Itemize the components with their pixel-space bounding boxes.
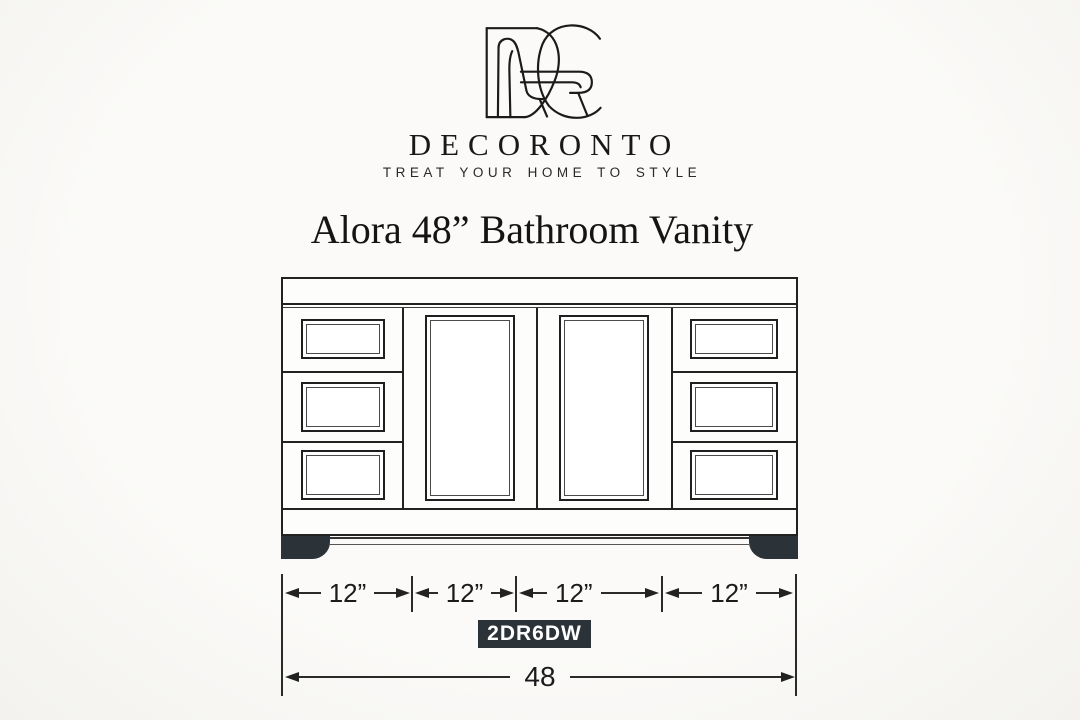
arrow-right-icon — [500, 588, 514, 598]
dimension-tick — [411, 576, 413, 612]
drawer-panel — [690, 319, 778, 359]
door-panel — [559, 315, 649, 501]
dimension-line — [756, 592, 779, 594]
dc-chair-monogram-icon — [478, 16, 618, 124]
cabinet-sections — [283, 308, 796, 510]
dimension-segment-2: 12” — [415, 579, 514, 607]
dimension-line — [491, 592, 500, 594]
drawer-panel — [301, 319, 385, 359]
drawer-panel — [301, 450, 385, 500]
dimension-line — [601, 592, 645, 594]
arrow-left-icon — [665, 588, 679, 598]
brand-name: DECORONTO — [0, 127, 1080, 163]
left-drawer-stack — [283, 308, 404, 508]
drawer — [283, 373, 402, 443]
drawer — [283, 443, 402, 508]
dimension-segment-4: 12” — [665, 579, 793, 607]
dimension-label: 12” — [547, 578, 601, 609]
extension-line-right — [795, 574, 797, 696]
right-foot — [749, 536, 798, 559]
model-code-badge: 2DR6DW — [478, 620, 591, 648]
drawer-panel — [690, 450, 778, 500]
dimension-label: 12” — [321, 578, 375, 609]
drawer-panel-inner — [695, 455, 773, 495]
dimension-line — [679, 592, 702, 594]
brand-tagline: TREAT YOUR HOME TO STYLE — [0, 165, 1080, 180]
dimension-line — [374, 592, 396, 594]
dimension-total: 48 — [285, 662, 795, 692]
arrow-left-icon — [285, 672, 299, 682]
dimension-line — [533, 592, 547, 594]
dimension-line — [299, 676, 510, 678]
arrow-left-icon — [519, 588, 533, 598]
countertop-strip — [283, 279, 796, 305]
dimension-label: 12” — [438, 578, 492, 609]
extension-line-left — [281, 574, 283, 696]
total-width-label: 48 — [510, 661, 569, 693]
arrow-left-icon — [415, 588, 429, 598]
bottom-rail — [283, 510, 796, 534]
drawer-panel-inner — [306, 455, 380, 495]
dimension-tick — [661, 576, 663, 612]
drawer — [283, 308, 402, 373]
toe-kick-line — [329, 537, 749, 545]
drawer-panel-inner — [306, 387, 380, 427]
door-panel-inner — [430, 320, 510, 496]
drawer-panel — [301, 382, 385, 432]
brand-monogram-icon — [478, 16, 618, 124]
vanity-drawing — [281, 277, 798, 536]
drawer-panel-inner — [306, 324, 380, 354]
dimension-line — [299, 592, 321, 594]
drawer — [673, 443, 796, 508]
left-foot — [281, 536, 330, 559]
right-drawer-stack — [673, 308, 796, 508]
right-door — [538, 308, 673, 508]
dimension-tick — [515, 576, 517, 612]
drawer-panel-inner — [695, 324, 773, 354]
drawer-panel-inner — [695, 387, 773, 427]
arrow-right-icon — [396, 588, 410, 598]
arrow-left-icon — [285, 588, 299, 598]
product-title: Alora 48” Bathroom Vanity — [0, 206, 1064, 253]
drawer — [673, 308, 796, 373]
arrow-right-icon — [779, 588, 793, 598]
arrow-right-icon — [781, 672, 795, 682]
door-panel-inner — [564, 320, 644, 496]
dimension-segment-3: 12” — [519, 579, 659, 607]
drawer — [673, 373, 796, 443]
dimension-line — [570, 676, 781, 678]
door-panel — [425, 315, 515, 501]
dimension-segment-1: 12” — [285, 579, 410, 607]
spec-sheet-page: DECORONTO TREAT YOUR HOME TO STYLE Alora… — [0, 0, 1080, 720]
left-door — [404, 308, 538, 508]
dimension-label: 12” — [702, 578, 756, 609]
dimension-line — [429, 592, 438, 594]
arrow-right-icon — [645, 588, 659, 598]
drawer-panel — [690, 382, 778, 432]
